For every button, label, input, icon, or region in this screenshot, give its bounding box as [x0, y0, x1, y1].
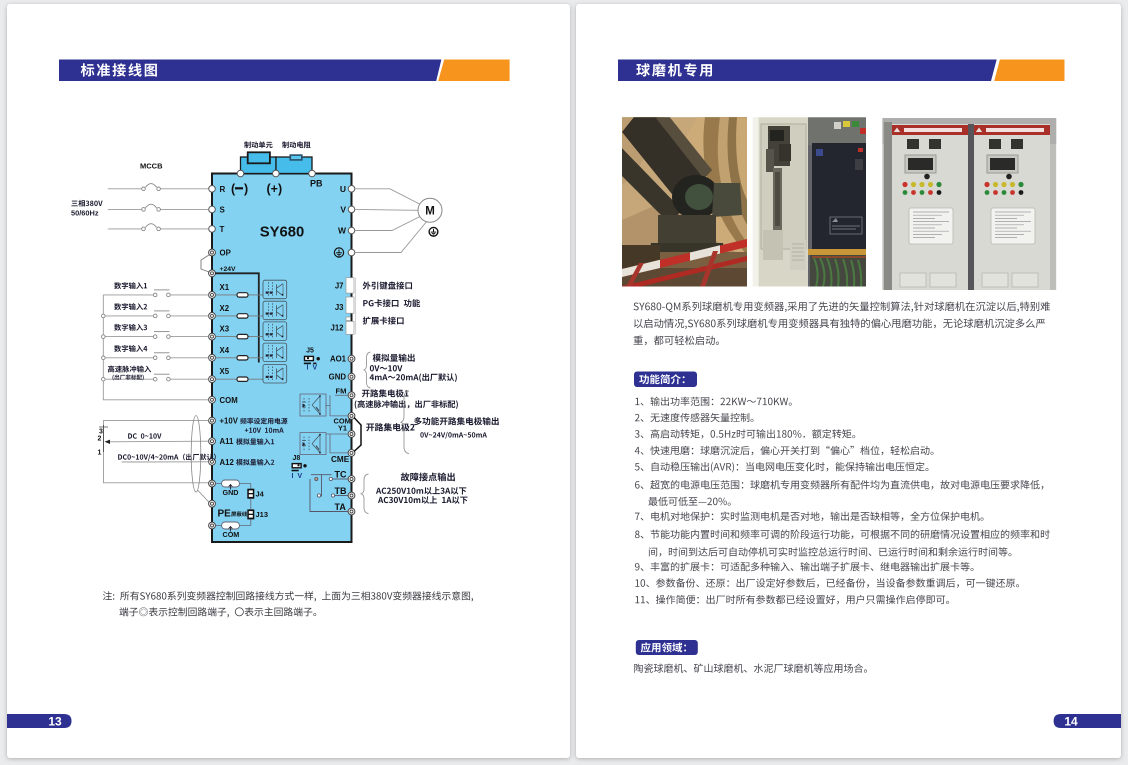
svg-text:3: 3 — [99, 429, 103, 436]
svg-text:13: 13 — [48, 715, 62, 729]
svg-text:GND: GND — [329, 373, 347, 382]
svg-text:J8: J8 — [293, 455, 301, 462]
svg-text:COM: COM — [223, 530, 240, 539]
svg-text:GND: GND — [223, 488, 239, 497]
svg-text:TB: TB — [335, 486, 347, 496]
svg-text:V: V — [313, 365, 318, 372]
svg-text:MCCB: MCCB — [140, 162, 163, 171]
svg-text:1: 1 — [98, 450, 102, 457]
svg-text:X2: X2 — [220, 304, 230, 313]
svg-text:COM: COM — [220, 396, 238, 405]
svg-text:V: V — [298, 473, 303, 480]
svg-text:): ) — [244, 182, 248, 196]
svg-text:V: V — [340, 205, 346, 215]
svg-text:M: M — [425, 205, 435, 217]
svg-text:X1: X1 — [220, 283, 230, 292]
svg-text:2: 2 — [98, 436, 102, 443]
svg-text:X3: X3 — [220, 325, 230, 334]
svg-text:J4: J4 — [256, 490, 265, 499]
svg-text:A12: A12 — [220, 458, 235, 467]
svg-text:Y1: Y1 — [338, 424, 347, 433]
svg-text:PB: PB — [310, 179, 323, 189]
svg-text:A11: A11 — [220, 437, 235, 446]
svg-text:R: R — [220, 185, 226, 194]
svg-text:50/60Hz: 50/60Hz — [71, 209, 99, 218]
svg-text:J5: J5 — [306, 348, 314, 355]
svg-text:TA: TA — [335, 502, 347, 512]
svg-text:+24V: +24V — [220, 266, 237, 273]
svg-text:J13: J13 — [256, 510, 269, 519]
svg-text:AO1: AO1 — [330, 355, 347, 364]
svg-text:J7: J7 — [335, 282, 344, 291]
svg-text:J3: J3 — [335, 303, 344, 312]
svg-text:TC: TC — [335, 470, 347, 480]
svg-text:J12: J12 — [330, 324, 344, 333]
svg-text:U: U — [340, 184, 346, 194]
svg-text:W: W — [338, 226, 347, 236]
svg-text:FM: FM — [336, 387, 347, 396]
svg-text:S: S — [220, 205, 226, 214]
svg-text:+10V: +10V — [220, 417, 239, 426]
svg-text:I: I — [292, 473, 294, 480]
svg-text:CME: CME — [331, 455, 350, 464]
svg-text:X4: X4 — [220, 346, 230, 355]
svg-text:X5: X5 — [220, 367, 230, 376]
svg-text:OP: OP — [220, 249, 231, 258]
svg-text:PE: PE — [218, 509, 232, 520]
svg-text:SY680: SY680 — [260, 225, 304, 241]
svg-text:T: T — [220, 225, 225, 234]
svg-text:(+): (+) — [267, 182, 283, 196]
svg-text:I: I — [307, 365, 309, 372]
svg-text:14: 14 — [1064, 715, 1078, 729]
